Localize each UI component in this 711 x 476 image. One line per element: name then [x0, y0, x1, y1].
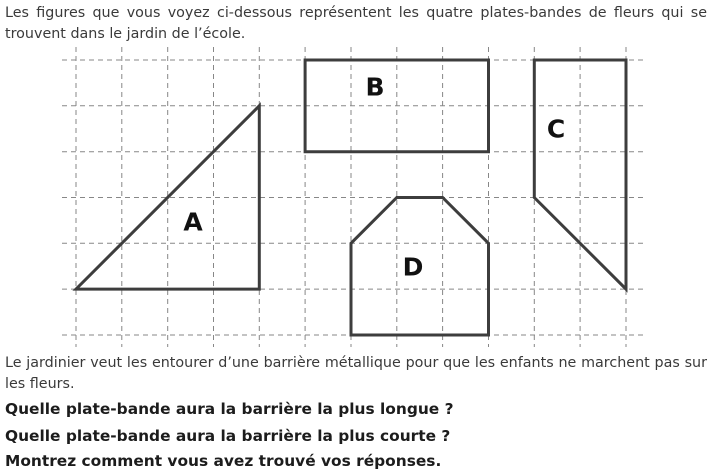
- worksheet-page: Les figures que vous voyez ci-dessous re…: [0, 0, 711, 476]
- question-shortest-fence: Quelle plate-bande aura la barrière la p…: [5, 427, 707, 445]
- flower-bed-D-label: D: [403, 253, 424, 282]
- flower-bed-B-label: B: [365, 73, 384, 102]
- flower-bed-A-outline: [76, 106, 259, 289]
- question-longest-fence: Quelle plate-bande aura la barrière la p…: [5, 400, 707, 418]
- question-show-work: Montrez comment vous avez trouvé vos rép…: [5, 452, 707, 470]
- flower-bed-C-label: C: [547, 115, 565, 144]
- gardener-paragraph: Le jardinier veut les entourer d’une bar…: [5, 353, 707, 394]
- flower-bed-A-label: A: [183, 208, 203, 237]
